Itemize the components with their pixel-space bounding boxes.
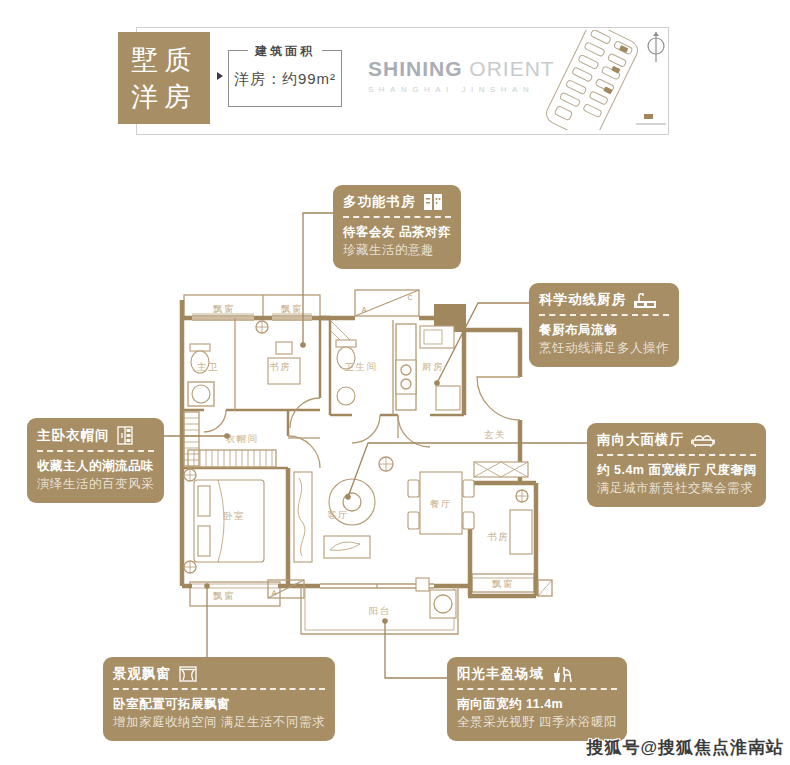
sun-terrace-icon xyxy=(551,665,573,683)
ac-label-a: A xyxy=(362,306,367,313)
callout-title: 南向大面横厅 xyxy=(597,431,684,449)
ac-label-c: C xyxy=(294,582,299,589)
room-label: 书房 xyxy=(487,531,509,542)
callout-line1: 收藏主人的潮流品味 xyxy=(37,457,154,476)
bookshelf-icon xyxy=(423,193,443,211)
callout-bay-window: 景观飘窗 卧室配置可拓展飘窗 增加家庭收纳空间 满足生活不同需求 xyxy=(103,657,335,741)
callout-line1: 待客会友 品茶对弈 xyxy=(343,223,451,242)
callout-line2: 演绎生活的百变风采 xyxy=(37,476,154,494)
callout-line2: 珍藏生活的意趣 xyxy=(343,242,451,260)
room-label: 主卫 xyxy=(197,361,219,372)
callout-title: 科学动线厨房 xyxy=(539,291,626,309)
callout-line1: 约 5.4m 面宽横厅 尺度奢阔 xyxy=(597,461,756,480)
room-label: 客厅 xyxy=(327,509,349,520)
room-label: 卫生间 xyxy=(345,361,378,372)
room-label: 飘窗 xyxy=(212,303,235,314)
callout-multifunction-study: 多功能书房 待客会友 品茶对弈 珍藏生活的意趣 xyxy=(333,185,461,269)
room-label: 书房 xyxy=(269,361,291,372)
callout-line2: 满足城市新贵社交聚会需求 xyxy=(597,480,756,498)
callout-line2: 全景采光视野 四季沐浴暖阳 xyxy=(457,714,617,732)
dashed-divider xyxy=(37,450,154,452)
dashed-divider xyxy=(457,688,617,690)
ac-label-c: C xyxy=(407,294,412,301)
callout-line1: 餐厨布局流畅 xyxy=(539,321,669,340)
callout-title: 景观飘窗 xyxy=(113,665,171,683)
callout-kitchen: 科学动线厨房 餐厨布局流畅 烹饪动线满足多人操作 xyxy=(529,283,679,367)
kitchen-sink-icon xyxy=(633,291,657,309)
room-label: 衣帽间 xyxy=(226,433,259,444)
ac-label-a: A xyxy=(272,589,277,596)
callout-title: 阳光丰盈场域 xyxy=(457,665,544,683)
callout-line1: 卧室配置可拓展飘窗 xyxy=(113,695,325,714)
callout-title: 主卧衣帽间 xyxy=(37,427,110,445)
callout-line2: 烹饪动线满足多人操作 xyxy=(539,340,669,358)
callout-line2: 增加家庭收纳空间 满足生活不同需求 xyxy=(113,714,325,732)
room-label: 餐厅 xyxy=(430,498,452,509)
bay-window-icon xyxy=(178,665,198,683)
room-labels: 飘窗飘窗主卫书房卫生间厨房衣帽间玄关卧室客厅餐厅书房飘窗飘窗阳台 xyxy=(197,303,514,616)
dashed-divider xyxy=(113,688,325,690)
callout-living-room: 南向大面横厅 约 5.4m 面宽横厅 尺度奢阔 满足城市新贵社交聚会需求 xyxy=(587,423,766,507)
room-label: 卧室 xyxy=(223,510,245,521)
dashed-divider xyxy=(539,314,669,316)
room-label: 阳台 xyxy=(369,605,391,616)
dashed-divider xyxy=(343,216,451,218)
floor-plan-svg: 飘窗飘窗主卫书房卫生间厨房衣帽间玄关卧室客厅餐厅书房飘窗飘窗阳台 A C A C xyxy=(0,0,790,765)
room-label: 玄关 xyxy=(484,429,506,440)
room-label: 飘窗 xyxy=(212,590,235,601)
callout-line1: 南向面宽约 11.4m xyxy=(457,695,617,714)
watermark: 搜狐号@搜狐焦点淮南站 xyxy=(586,736,784,759)
sofa-icon xyxy=(691,432,717,448)
dashed-divider xyxy=(597,454,756,456)
wardrobe-icon xyxy=(117,426,133,445)
room-label: 飘窗 xyxy=(491,578,514,589)
room-label: 飘窗 xyxy=(280,303,303,314)
room-label: 厨房 xyxy=(422,361,444,372)
callout-balcony: 阳光丰盈场域 南向面宽约 11.4m 全景采光视野 四季沐浴暖阳 xyxy=(447,657,627,741)
callout-title: 多功能书房 xyxy=(343,193,416,211)
callout-master-closet: 主卧衣帽间 收藏主人的潮流品味 演绎生活的百变风采 xyxy=(27,418,164,503)
